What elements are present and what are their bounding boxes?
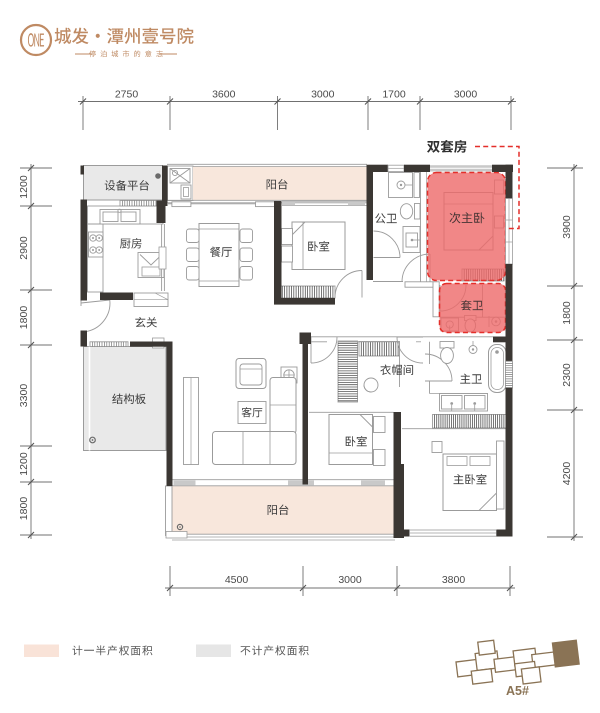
svg-text:3000: 3000	[311, 89, 335, 101]
svg-text:1700: 1700	[382, 89, 406, 101]
svg-text:3000: 3000	[338, 574, 362, 586]
svg-text:2900: 2900	[18, 236, 30, 260]
svg-text:2750: 2750	[115, 89, 139, 101]
svg-text:1200: 1200	[18, 452, 30, 476]
svg-text:4500: 4500	[225, 574, 249, 586]
svg-text:1800: 1800	[18, 497, 30, 521]
svg-text:A5#: A5#	[506, 684, 529, 698]
svg-text:3600: 3600	[212, 89, 236, 101]
svg-text:3800: 3800	[442, 574, 466, 586]
svg-text:2300: 2300	[561, 363, 573, 387]
svg-text:1200: 1200	[18, 175, 30, 199]
svg-text:3900: 3900	[561, 215, 573, 239]
svg-text:1800: 1800	[18, 306, 30, 330]
svg-text:3000: 3000	[454, 89, 478, 101]
svg-text:3300: 3300	[18, 384, 30, 408]
svg-text:4200: 4200	[561, 462, 573, 486]
svg-text:1800: 1800	[561, 301, 573, 325]
